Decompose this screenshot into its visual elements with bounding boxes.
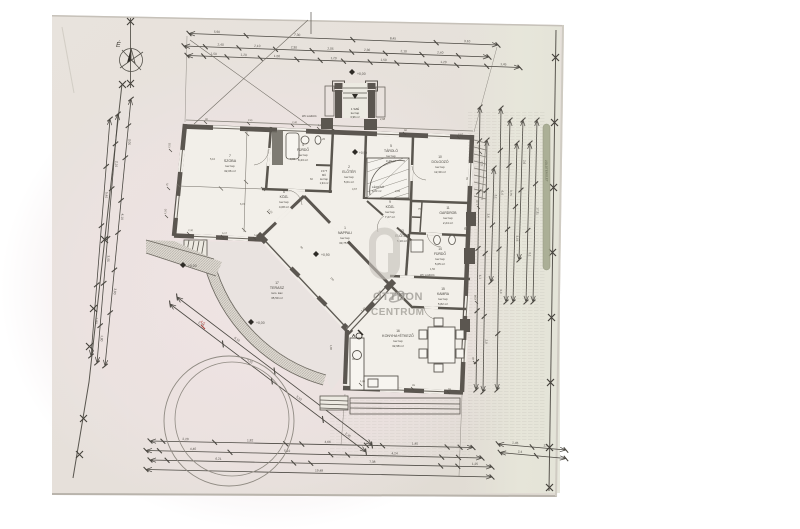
svg-text:1,50: 1,50 <box>163 208 168 214</box>
svg-text:2,4: 2,4 <box>543 443 548 447</box>
svg-text:5,90: 5,90 <box>214 30 221 34</box>
svg-text:NAPPALI: NAPPALI <box>338 231 352 235</box>
svg-text:1,50: 1,50 <box>380 58 387 62</box>
svg-text:150: 150 <box>248 118 253 122</box>
svg-text:2,05: 2,05 <box>167 142 172 148</box>
svg-text:6: 6 <box>283 190 285 194</box>
svg-text:1,20: 1,20 <box>320 137 326 141</box>
svg-text:3,46 m²: 3,46 m² <box>386 159 396 163</box>
svg-text:3,05: 3,05 <box>106 255 111 262</box>
svg-text:4,40: 4,40 <box>190 447 197 451</box>
svg-text:3,90: 3,90 <box>113 288 118 295</box>
svg-text:7,38: 7,38 <box>369 460 376 464</box>
svg-text:6,07: 6,07 <box>222 231 228 235</box>
svg-text:2,10: 2,10 <box>401 49 408 53</box>
svg-text:32,98 m²: 32,98 m² <box>392 344 404 348</box>
svg-text:tam. kav: tam. kav <box>271 291 283 295</box>
svg-text:3,96 m²: 3,96 m² <box>350 115 360 119</box>
svg-text:KAMRA: KAMRA <box>437 292 450 296</box>
svg-text:ker lap: ker lap <box>320 177 328 181</box>
svg-text:14: 14 <box>438 247 442 251</box>
svg-text:É: É <box>116 40 121 49</box>
svg-text:FÜRDŐ: FÜRDŐ <box>297 147 309 152</box>
svg-text:ker lap: ker lap <box>344 175 353 179</box>
svg-text:1,94 m²: 1,94 m² <box>320 181 329 185</box>
svg-text:5: 5 <box>390 144 392 148</box>
svg-text:7,27 m²: 7,27 m² <box>385 215 395 219</box>
svg-text:3,65: 3,65 <box>290 157 296 161</box>
svg-text:3,65: 3,65 <box>477 144 481 150</box>
svg-text:SZOBA: SZOBA <box>224 159 237 163</box>
svg-text:1,20: 1,20 <box>330 56 337 60</box>
svg-text:ker lap: ker lap <box>385 210 394 214</box>
svg-text:1,80: 1,80 <box>94 317 99 324</box>
svg-text:10: 10 <box>438 155 442 159</box>
svg-text:6,23 m²: 6,23 m² <box>372 189 382 193</box>
svg-text:7: 7 <box>229 154 231 158</box>
svg-text:5,10: 5,10 <box>210 157 216 161</box>
svg-text:19,48: 19,48 <box>315 469 323 473</box>
svg-text:1,20: 1,20 <box>440 60 447 64</box>
svg-text:15: 15 <box>441 287 445 291</box>
svg-text:TERASZ: TERASZ <box>270 286 285 290</box>
svg-text:4,08 m²: 4,08 m² <box>279 205 289 209</box>
svg-text:ker lap: ker lap <box>225 164 234 168</box>
svg-text:1,05: 1,05 <box>318 123 324 127</box>
svg-text:7,30: 7,30 <box>294 33 301 37</box>
svg-text:2,05: 2,05 <box>327 47 334 51</box>
svg-text:3 F'T: 3 F'T <box>321 169 328 173</box>
svg-text:GARDROB: GARDROB <box>439 211 457 215</box>
svg-text:1,45: 1,45 <box>512 441 519 446</box>
svg-text:ker lap: ker lap <box>393 339 402 343</box>
svg-text:1,80: 1,80 <box>329 345 333 351</box>
svg-text:DOLGOZÓ: DOLGOZÓ <box>432 159 449 164</box>
svg-text:2,24 m²: 2,24 m² <box>443 221 453 225</box>
svg-text:6,07: 6,07 <box>240 202 246 206</box>
svg-text:2,98: 2,98 <box>473 294 477 300</box>
svg-text:KÖZL: KÖZL <box>386 205 395 209</box>
svg-text:4,10: 4,10 <box>120 213 125 220</box>
svg-text:2,40: 2,40 <box>218 43 225 47</box>
svg-text:1,20: 1,20 <box>241 53 248 57</box>
svg-text:11: 11 <box>446 206 450 210</box>
svg-text:5,10: 5,10 <box>254 233 260 237</box>
svg-text:2,4: 2,4 <box>518 450 523 454</box>
svg-text:1,25: 1,25 <box>472 462 479 466</box>
svg-text:ELŐTÉR: ELŐTÉR <box>342 169 356 174</box>
svg-text:ker lap: ker lap <box>435 257 444 261</box>
svg-text:6,21: 6,21 <box>215 457 222 461</box>
svg-text:+0,90: +0,90 <box>359 151 367 155</box>
svg-text:35,50 m²: 35,50 m² <box>271 296 283 300</box>
svg-text:5,82 m²: 5,82 m² <box>438 302 448 306</box>
svg-text:1,82: 1,82 <box>247 438 254 442</box>
svg-text:ker lap: ker lap <box>435 165 444 169</box>
svg-text:5,05 m²: 5,05 m² <box>435 262 445 266</box>
svg-text:ker lap: ker lap <box>438 297 447 301</box>
svg-text:1,80: 1,80 <box>360 379 366 383</box>
svg-text:1,80: 1,80 <box>99 335 104 342</box>
svg-text:17: 17 <box>275 281 279 285</box>
svg-text:8,45: 8,45 <box>390 36 397 40</box>
svg-text:KONYHA+ÉTKEZŐ: KONYHA+ÉTKEZŐ <box>382 333 414 338</box>
svg-text:4,67: 4,67 <box>352 187 358 191</box>
svg-text:5,40: 5,40 <box>104 192 109 199</box>
svg-text:3,10: 3,10 <box>464 39 471 43</box>
svg-text:1,50: 1,50 <box>274 54 281 58</box>
svg-text:2,30: 2,30 <box>291 45 298 49</box>
svg-text:2,10: 2,10 <box>254 44 261 48</box>
svg-text:1: 1 <box>344 226 346 230</box>
svg-text:WC szellőző: WC szellőző <box>302 114 317 118</box>
svg-text:+0,00: +0,00 <box>256 321 265 325</box>
svg-text:2,98: 2,98 <box>380 117 386 121</box>
svg-text:3,05: 3,05 <box>127 139 132 146</box>
svg-text:16: 16 <box>396 329 400 333</box>
svg-text:2,30: 2,30 <box>188 228 194 232</box>
svg-text:5,61 m²: 5,61 m² <box>344 180 354 184</box>
svg-text:ker lap: ker lap <box>443 216 452 220</box>
svg-text:2,40: 2,40 <box>292 120 298 124</box>
svg-text:ker lap: ker lap <box>298 153 307 157</box>
svg-text:2,20: 2,20 <box>182 437 189 441</box>
svg-text:KÖZL: KÖZL <box>280 195 289 199</box>
svg-text:2,10: 2,10 <box>114 161 119 168</box>
svg-text:2: 2 <box>348 165 350 169</box>
svg-text:TÁROLÓ: TÁROLÓ <box>384 148 398 153</box>
svg-text:+0,00: +0,00 <box>188 264 197 268</box>
svg-text:2,05: 2,05 <box>395 189 401 193</box>
svg-text:+0,90: +0,90 <box>321 253 330 257</box>
svg-text:ker lap: ker lap <box>279 200 288 204</box>
svg-text:WC szellőző: WC szellőző <box>420 273 435 277</box>
svg-text:4,67: 4,67 <box>458 132 464 136</box>
svg-text:CENTRUM: CENTRUM <box>371 307 425 318</box>
svg-text:4: 4 <box>302 143 304 147</box>
svg-text:13: 13 <box>400 229 404 233</box>
svg-text:32,06 m²: 32,06 m² <box>224 169 236 173</box>
svg-text:1,50: 1,50 <box>430 267 436 271</box>
svg-text:8,43 m²: 8,43 m² <box>298 158 308 162</box>
svg-text:1,45: 1,45 <box>500 62 507 66</box>
svg-text:9: 9 <box>389 200 391 204</box>
svg-text:+0,00: +0,00 <box>357 72 366 76</box>
svg-text:ker lap: ker lap <box>386 154 395 158</box>
svg-text:FÜRDŐ: FÜRDŐ <box>434 251 446 256</box>
svg-text:2,30: 2,30 <box>364 48 371 52</box>
svg-text:12,30 m²: 12,30 m² <box>434 170 446 174</box>
svg-text:2,40: 2,40 <box>437 50 444 54</box>
svg-text:ker lap: ker lap <box>340 236 349 240</box>
svg-text:33,75 m²: 33,75 m² <box>339 241 351 245</box>
svg-text:1,20: 1,20 <box>475 199 479 205</box>
